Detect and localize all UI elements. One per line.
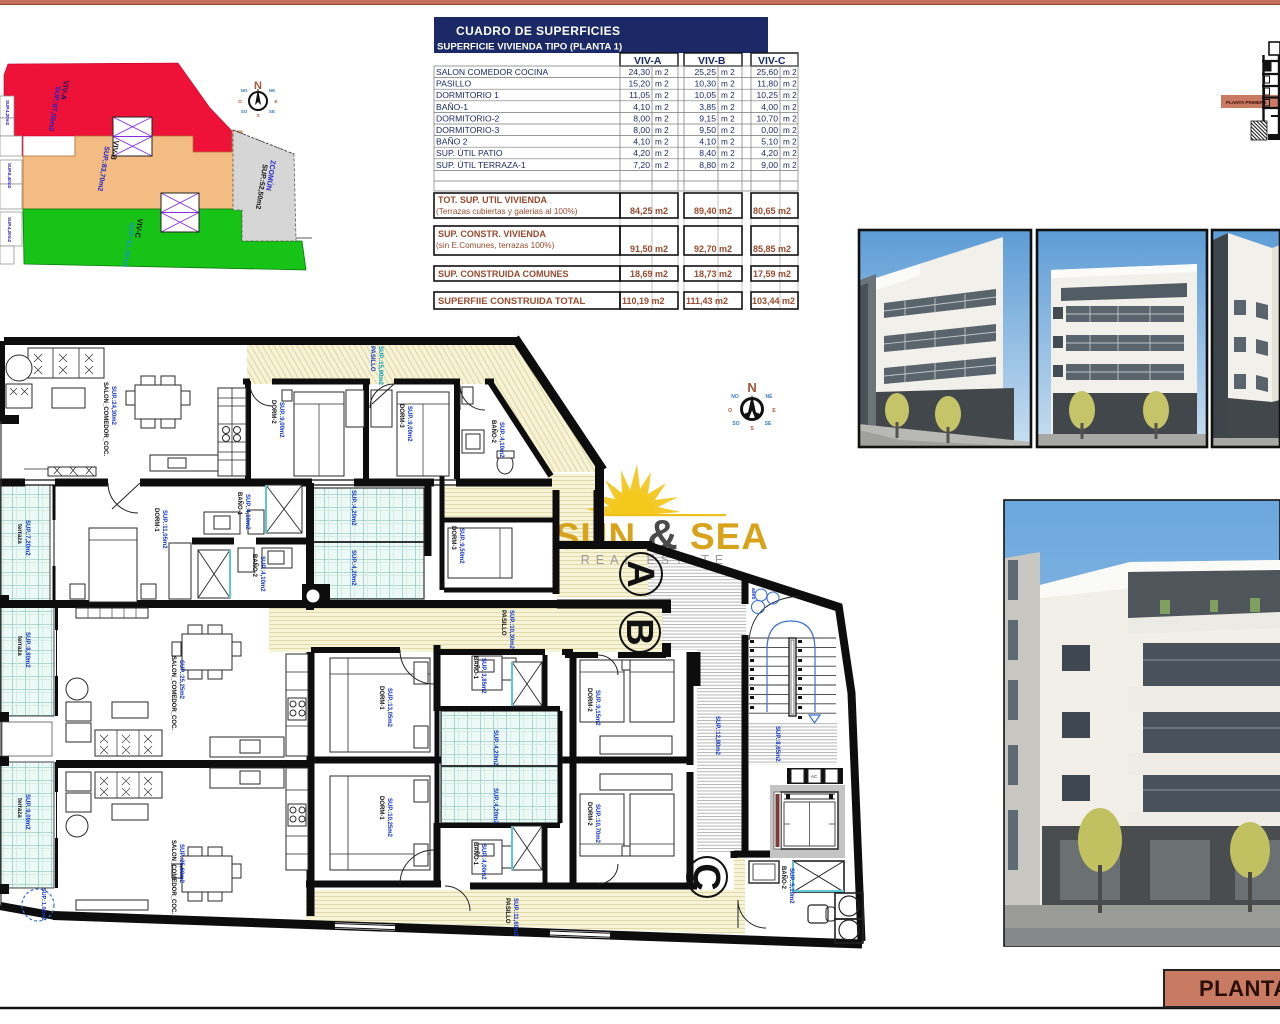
- svg-text:m 2: m 2: [655, 161, 669, 170]
- svg-text:SUP. ÚTIL TERRAZA-1: SUP. ÚTIL TERRAZA-1: [436, 160, 526, 170]
- svg-text:92,70 m2: 92,70 m2: [694, 244, 732, 254]
- svg-text:m 2: m 2: [721, 126, 735, 135]
- svg-text:DORM-2: DORM-2: [586, 802, 592, 826]
- svg-text:SUP.:25,25m2: SUP.:25,25m2: [178, 660, 184, 700]
- svg-text:BAÑO-1: BAÑO-1: [472, 656, 479, 680]
- svg-text:m 2: m 2: [721, 103, 735, 112]
- svg-text:SE: SE: [269, 109, 275, 114]
- svg-text:SUP.:15,90m2: SUP.:15,90m2: [377, 346, 383, 386]
- svg-text:SUP.:8,65m2: SUP.:8,65m2: [774, 726, 780, 762]
- svg-text:5,10: 5,10: [761, 137, 778, 147]
- svg-text:m 2: m 2: [783, 126, 797, 135]
- svg-text:110,19 m2: 110,19 m2: [622, 296, 665, 306]
- svg-text:SUP.4,20m2: SUP.4,20m2: [7, 217, 12, 243]
- svg-text:SUP.:9,00m2: SUP.:9,00m2: [24, 794, 30, 830]
- svg-text:10,30: 10,30: [694, 79, 716, 89]
- svg-text:VIV-A: VIV-A: [634, 55, 662, 67]
- svg-text:8,40: 8,40: [699, 148, 716, 158]
- svg-text:BAÑO-2: BAÑO-2: [780, 866, 787, 890]
- svg-text:SUP.:12,80m2: SUP.:12,80m2: [714, 716, 720, 756]
- svg-text:85,85 m2: 85,85 m2: [753, 244, 791, 254]
- svg-text:4,10: 4,10: [633, 137, 650, 147]
- svg-text:m 2: m 2: [721, 114, 735, 123]
- svg-text:SUP.:9,00m2: SUP.:9,00m2: [278, 402, 284, 438]
- svg-text:SUP.:9,00m2: SUP.:9,00m2: [406, 406, 412, 442]
- svg-text:SUP.:10,25m2: SUP.:10,25m2: [386, 798, 392, 838]
- svg-text:BAÑO-1: BAÑO-1: [472, 842, 479, 866]
- svg-text:O: O: [238, 99, 242, 104]
- svg-text:4,10: 4,10: [699, 137, 716, 147]
- svg-text:SUP.:4,00m2: SUP.:4,00m2: [480, 844, 486, 880]
- svg-text:m 2: m 2: [655, 149, 669, 158]
- svg-text:SUP.:4,10m2: SUP.:4,10m2: [244, 494, 250, 530]
- svg-text:SUP.:11,05m2: SUP.:11,05m2: [161, 510, 167, 549]
- svg-text:18,73 m2: 18,73 m2: [694, 269, 732, 279]
- svg-text:103,44 m2: 103,44 m2: [752, 296, 795, 306]
- svg-text:SO: SO: [241, 109, 248, 114]
- svg-text:15,20: 15,20: [628, 79, 650, 89]
- svg-text:DORM-1: DORM-1: [153, 508, 159, 532]
- svg-text:aseo: aseo: [750, 588, 756, 599]
- svg-text:SUP.:7,20m2: SUP.:7,20m2: [24, 520, 30, 556]
- svg-text:SUP.8,40m2: SUP.8,40m2: [7, 163, 12, 189]
- svg-text:SUP.:1,05m2: SUP.:1,05m2: [40, 888, 46, 921]
- svg-text:24,30: 24,30: [628, 67, 650, 77]
- svg-text:80,65 m2: 80,65 m2: [753, 206, 791, 216]
- svg-text:10,25: 10,25: [756, 90, 778, 100]
- svg-text:25,25: 25,25: [694, 67, 716, 77]
- svg-text:4,10: 4,10: [633, 102, 650, 112]
- svg-text:10,05: 10,05: [694, 90, 716, 100]
- svg-text:7,20: 7,20: [633, 160, 650, 170]
- svg-text:N: N: [747, 380, 756, 395]
- svg-text:O: O: [728, 408, 732, 414]
- svg-text:3,85: 3,85: [699, 102, 716, 112]
- svg-text:m 2: m 2: [783, 68, 797, 77]
- svg-text:m 2: m 2: [783, 91, 797, 100]
- svg-text:BAÑO-1: BAÑO-1: [236, 492, 243, 516]
- svg-text:SUP.:13,05m2: SUP.:13,05m2: [386, 688, 392, 728]
- svg-text:89,40 m2: 89,40 m2: [694, 206, 732, 216]
- svg-text:DORM-1: DORM-1: [378, 686, 384, 710]
- svg-text:m 2: m 2: [783, 161, 797, 170]
- svg-text:SALON_COMEDOR_COC.: SALON_COMEDOR_COC.: [102, 382, 108, 456]
- svg-text:DORMITORIO-2: DORMITORIO-2: [436, 113, 500, 123]
- svg-text:m 2: m 2: [721, 138, 735, 147]
- svg-text:SUPERFICIE VIVIENDA TIPO (PLA: SUPERFICIE VIVIENDA TIPO (PLANTA 1): [437, 42, 622, 53]
- svg-text:m 2: m 2: [783, 80, 797, 89]
- svg-text:SUP.:4,20m2: SUP.:4,20m2: [350, 490, 356, 526]
- svg-text:SUP. ÚTIL PATIO: SUP. ÚTIL PATIO: [436, 148, 503, 158]
- svg-text:S: S: [750, 426, 754, 432]
- svg-text:m 2: m 2: [721, 149, 735, 158]
- svg-text:m 2: m 2: [783, 149, 797, 158]
- svg-text:SUP.4,20m2: SUP.4,20m2: [5, 100, 10, 126]
- svg-text:SUP.:5,10m2: SUP.:5,10m2: [788, 868, 794, 904]
- svg-text:DORM-3: DORM-3: [398, 404, 404, 428]
- svg-text:SUP. CONSTRUIDA COMUNES: SUP. CONSTRUIDA COMUNES: [438, 269, 569, 279]
- svg-text:terraza: terraza: [16, 524, 22, 544]
- svg-text:VIV-C: VIV-C: [758, 55, 786, 67]
- svg-text:SUP.:4,20m2: SUP.:4,20m2: [350, 550, 356, 586]
- svg-text:C: C: [685, 863, 727, 890]
- svg-text:S: S: [256, 113, 259, 118]
- svg-text:m 2: m 2: [655, 126, 669, 135]
- svg-text:m 2: m 2: [721, 80, 735, 89]
- svg-text:DORM-2: DORM-2: [586, 688, 592, 712]
- svg-text:DORMITORIO 1: DORMITORIO 1: [436, 90, 499, 100]
- svg-text:CUADRO DE SUPERFICIES: CUADRO DE SUPERFICIES: [456, 24, 620, 38]
- svg-text:4,00: 4,00: [761, 102, 778, 112]
- svg-text:E: E: [274, 99, 277, 104]
- svg-text:BAÑO-2: BAÑO-2: [490, 420, 497, 444]
- svg-text:DORM-2: DORM-2: [270, 400, 276, 424]
- svg-text:PASILLO: PASILLO: [436, 79, 472, 89]
- svg-text:DORM-3: DORM-3: [450, 526, 456, 550]
- svg-text:10,70: 10,70: [756, 113, 778, 123]
- svg-text:m 2: m 2: [655, 68, 669, 77]
- svg-text:PASILLO: PASILLO: [369, 346, 375, 372]
- svg-text:(Terrazas cubiertas y galerias: (Terrazas cubiertas y galerias al 100%): [436, 207, 578, 216]
- svg-text:SUPERFIIE CONSTRUIDA TOTAL: SUPERFIIE CONSTRUIDA TOTAL: [438, 295, 585, 306]
- svg-text:SUP.:10,30m2: SUP.:10,30m2: [508, 610, 514, 650]
- svg-text:terraza: terraza: [16, 798, 22, 818]
- svg-text:BAÑO 2: BAÑO 2: [436, 137, 468, 147]
- svg-text:111,43 m2: 111,43 m2: [686, 296, 728, 306]
- svg-text:TOT. SUP. UTIL VIVIENDA: TOT. SUP. UTIL VIVIENDA: [438, 195, 548, 205]
- svg-text:8,00: 8,00: [633, 113, 650, 123]
- svg-text:NE: NE: [269, 88, 275, 93]
- svg-text:SUP.:3,85m2: SUP.:3,85m2: [480, 658, 486, 694]
- svg-text:PASILLO: PASILLO: [504, 898, 510, 924]
- svg-text:9,50: 9,50: [699, 125, 716, 135]
- svg-text:0,00: 0,00: [761, 125, 778, 135]
- svg-text:m 2: m 2: [655, 114, 669, 123]
- svg-text:m 2: m 2: [655, 80, 669, 89]
- svg-text:SUP.:8,80m2: SUP.:8,80m2: [24, 632, 30, 668]
- svg-text:E: E: [772, 408, 776, 414]
- svg-text:A: A: [619, 560, 661, 587]
- svg-text:m 2: m 2: [655, 91, 669, 100]
- svg-text:SE: SE: [765, 421, 772, 427]
- svg-text:NO: NO: [731, 394, 739, 400]
- svg-text:DORMITORIO-3: DORMITORIO-3: [436, 125, 500, 135]
- svg-text:PLANTA PRIMERA: PLANTA PRIMERA: [1226, 100, 1267, 105]
- svg-text:DORM-1: DORM-1: [378, 796, 384, 820]
- svg-text:SUP.:11,60m2: SUP.:11,60m2: [512, 898, 518, 937]
- svg-text:84,25 m2: 84,25 m2: [630, 206, 668, 216]
- svg-text:(sin E.Comunes, terrazas 100%): (sin E.Comunes, terrazas 100%): [436, 241, 555, 250]
- svg-text:m 2: m 2: [721, 91, 735, 100]
- svg-text:SO: SO: [732, 421, 739, 427]
- svg-text:8,00: 8,00: [633, 125, 650, 135]
- svg-text:SUP.:9,15m2: SUP.:9,15m2: [594, 690, 600, 726]
- svg-text:AC: AC: [811, 774, 818, 779]
- svg-text:m 2: m 2: [783, 103, 797, 112]
- svg-text:SUP.:4,10m2: SUP.:4,10m2: [498, 422, 504, 458]
- svg-text:m 2: m 2: [721, 68, 735, 77]
- svg-text:91,50 m2: 91,50 m2: [630, 244, 668, 254]
- svg-text:m 2: m 2: [721, 161, 735, 170]
- svg-text:11,05: 11,05: [629, 90, 650, 100]
- svg-text:m 2: m 2: [655, 138, 669, 147]
- svg-text:BAÑO-1: BAÑO-1: [436, 102, 468, 112]
- svg-text:SALON COMEDOR COCINA: SALON COMEDOR COCINA: [436, 67, 548, 77]
- svg-text:VIV-B: VIV-B: [698, 55, 726, 67]
- svg-text:PASILLO: PASILLO: [500, 610, 506, 636]
- svg-text:SALON_COMEDOR_COC.: SALON_COMEDOR_COC.: [170, 656, 176, 730]
- svg-text:SUP.:4,20m2: SUP.:4,20m2: [492, 730, 498, 766]
- svg-text:SUP.:4,20m2: SUP.:4,20m2: [492, 788, 498, 824]
- svg-text:18,69 m2: 18,69 m2: [630, 269, 668, 279]
- svg-text:NO: NO: [241, 88, 248, 93]
- svg-text:SUP.:4,10m2: SUP.:4,10m2: [259, 556, 265, 592]
- svg-text:SALON_COMEDOR_COC.: SALON_COMEDOR_COC.: [170, 840, 176, 914]
- svg-text:NE: NE: [766, 394, 774, 400]
- svg-text:11,80: 11,80: [757, 79, 778, 89]
- svg-text:SUP.:24,30m2: SUP.:24,30m2: [110, 386, 116, 426]
- svg-text:SUP.:10,70m2: SUP.:10,70m2: [594, 804, 600, 844]
- svg-text:25,60: 25,60: [756, 67, 778, 77]
- svg-text:SUP. CONSTR. VIVIENDA: SUP. CONSTR. VIVIENDA: [438, 229, 546, 239]
- svg-text:terraza: terraza: [16, 636, 22, 656]
- svg-text:SUP.:25,60m2: SUP.:25,60m2: [178, 844, 184, 884]
- svg-text:9,00: 9,00: [761, 160, 778, 170]
- svg-text:4,20: 4,20: [633, 148, 650, 158]
- svg-text:17,59 m2: 17,59 m2: [753, 269, 791, 279]
- svg-text:B: B: [618, 618, 660, 645]
- svg-text:4,20: 4,20: [761, 148, 778, 158]
- svg-text:m 2: m 2: [655, 103, 669, 112]
- svg-text:8,80: 8,80: [699, 160, 716, 170]
- svg-text:9,15: 9,15: [699, 113, 716, 123]
- svg-text:m 2: m 2: [783, 138, 797, 147]
- svg-text:BAÑO-2: BAÑO-2: [251, 554, 258, 578]
- svg-text:m 2: m 2: [783, 114, 797, 123]
- svg-text:SUP.:9,50m2: SUP.:9,50m2: [458, 528, 464, 564]
